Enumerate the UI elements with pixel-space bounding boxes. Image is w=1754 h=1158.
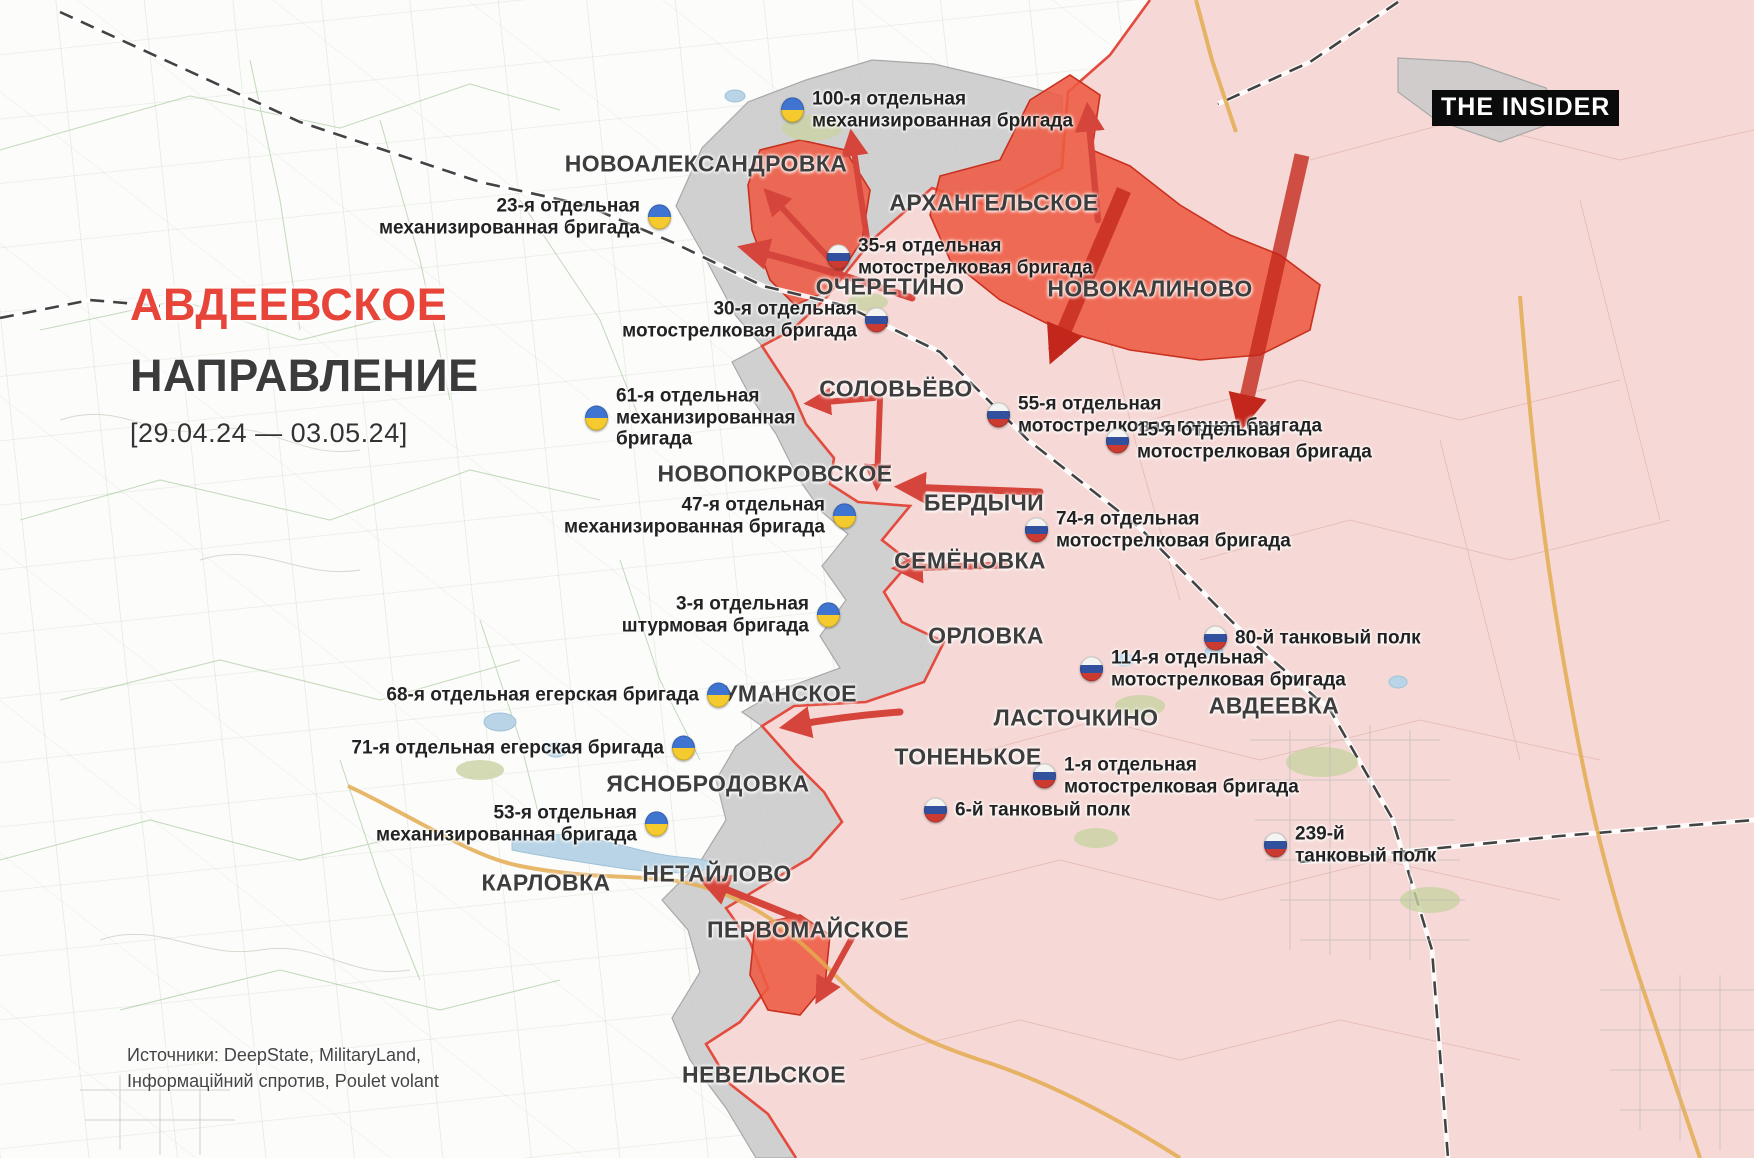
russia-flag-icon	[1264, 833, 1287, 858]
sources-line2: Інформаційний спротив, Poulet volant	[127, 1068, 439, 1094]
unit-label-text: 53-я отдельнаямеханизированная бригада	[376, 802, 637, 845]
ukraine-flag-icon	[781, 98, 804, 123]
russia-flag-icon	[1025, 518, 1048, 543]
title-block: АВДЕЕВСКОЕ НАПРАВЛЕНИЕ [29.04.24 — 03.05…	[130, 282, 479, 447]
unit-label-ru-239-tank: 239-йтанковый полк	[1264, 823, 1436, 866]
unit-label-text: 71-я отдельная егерская бригада	[351, 737, 664, 759]
settlement-label-orlovka: ОРЛОВКА	[928, 623, 1044, 650]
ukraine-flag-icon	[817, 603, 840, 628]
unit-label-ru-114-motor: 114-я отдельнаямотострелковая бригада	[1080, 647, 1346, 690]
unit-label-text: 3-я отдельнаяштурмовая бригада	[622, 593, 809, 636]
unit-label-ru-15-motor: 15-я отдельнаямотострелковая бригада	[1106, 419, 1372, 462]
settlement-label-pervomayskoe: ПЕРВОМАЙСКОЕ	[707, 917, 909, 944]
settlement-label-nevelskoe: НЕВЕЛЬСКОЕ	[682, 1062, 846, 1089]
sources-line1: Источники: DeepState, MilitaryLand,	[127, 1042, 439, 1068]
settlement-label-novooleksandrivka: НОВОАЛЕКСАНДРОВКА	[565, 151, 848, 178]
russia-flag-icon	[1080, 657, 1103, 682]
sources-note: Источники: DeepState, MilitaryLand, Інфо…	[127, 1042, 439, 1094]
unit-label-text: 6-й танковый полк	[955, 799, 1130, 821]
settlement-label-novopokrovskoe: НОВОПОКРОВСКОЕ	[657, 461, 892, 488]
settlement-label-netaylovo: НЕТАЙЛОВО	[642, 861, 791, 888]
unit-label-ua-68-jaeger: 68-я отдельная егерская бригада	[386, 683, 730, 708]
unit-label-text: 80-й танковый полк	[1235, 627, 1421, 649]
unit-label-text: 74-я отдельнаямотострелковая бригада	[1056, 508, 1291, 551]
unit-label-text: 1-я отдельнаямотострелковая бригада	[1064, 754, 1299, 797]
unit-label-ua-47-mech: 47-я отдельнаямеханизированная бригада	[564, 494, 856, 537]
unit-label-ua-100-mech: 100-я отдельнаямеханизированная бригада	[781, 88, 1073, 131]
ukraine-flag-icon	[648, 205, 671, 230]
settlement-label-semyonovka: СЕМЁНОВКА	[894, 548, 1046, 575]
russia-flag-icon	[987, 403, 1010, 428]
unit-label-ua-71-jaeger: 71-я отдельная егерская бригада	[351, 736, 695, 761]
ukraine-flag-icon	[833, 504, 856, 529]
settlement-label-tonenkoe: ТОНЕНЬКОЕ	[894, 744, 1041, 771]
unit-label-ru-30-motor: 30-я отдельнаямотострелковая бригада	[622, 298, 888, 341]
ukraine-flag-icon	[645, 812, 668, 837]
map-graphics	[0, 0, 1754, 1158]
unit-label-ru-6-tank: 6-й танковый полк	[924, 798, 1130, 823]
unit-label-ua-3-assault: 3-я отдельнаяштурмовая бригада	[622, 593, 840, 636]
ukraine-flag-icon	[585, 406, 608, 431]
unit-label-text: 30-я отдельнаямотострелковая бригада	[622, 298, 857, 341]
unit-label-ua-53-mech: 53-я отдельнаямеханизированная бригада	[376, 802, 668, 845]
unit-label-ru-1-motor: 1-я отдельнаямотострелковая бригада	[1033, 754, 1299, 797]
unit-label-text: 23-я отдельнаямеханизированная бригада	[379, 195, 640, 238]
brand-logo: THE INSIDER	[1432, 90, 1619, 126]
ukraine-flag-icon	[707, 683, 730, 708]
map-title-line2: НАПРАВЛЕНИЕ	[130, 353, 479, 398]
unit-label-text: 47-я отдельнаямеханизированная бригада	[564, 494, 825, 537]
settlement-label-yasnobrodovka: ЯСНОБРОДОВКА	[606, 771, 809, 798]
unit-label-ru-74-motor: 74-я отдельнаямотострелковая бригада	[1025, 508, 1291, 551]
russia-flag-icon	[1033, 764, 1056, 789]
ukraine-flag-icon	[672, 736, 695, 761]
russia-flag-icon	[924, 798, 947, 823]
settlement-label-umanskoe: УМАНСКОЕ	[723, 681, 857, 708]
russia-flag-icon	[865, 308, 888, 333]
map-title-line1: АВДЕЕВСКОЕ	[130, 282, 479, 327]
unit-label-text: 114-я отдельнаямотострелковая бригада	[1111, 647, 1346, 690]
map-canvas: THE INSIDER АВДЕЕВСКОЕ НАПРАВЛЕНИЕ [29.0…	[0, 0, 1754, 1158]
unit-label-ua-23-mech: 23-я отдельнаямеханизированная бригада	[379, 195, 671, 238]
unit-label-text: 35-я отдельнаямотострелковая бригада	[858, 235, 1093, 278]
settlement-label-arkhangelskoe: АРХАНГЕЛЬСКОЕ	[889, 190, 1098, 217]
russia-flag-icon	[1106, 429, 1129, 454]
unit-label-text: 61-я отдельнаямеханизированнаябригада	[616, 386, 796, 451]
russia-flag-icon	[827, 245, 850, 270]
unit-label-ru-35-motor: 35-я отдельнаямотострелковая бригада	[827, 235, 1093, 278]
date-range: [29.04.24 — 03.05.24]	[130, 420, 479, 447]
settlement-label-novokalinovo: НОВОКАЛИНОВО	[1047, 276, 1252, 303]
settlement-label-lastochkino: ЛАСТОЧКИНО	[994, 705, 1159, 732]
settlement-label-solovyovo: СОЛОВЬЁВО	[819, 376, 972, 403]
unit-label-text: 15-я отдельнаямотострелковая бригада	[1137, 419, 1372, 462]
settlement-label-avdeevka: АВДЕЕВКА	[1209, 693, 1339, 720]
unit-label-text: 68-я отдельная егерская бригада	[386, 684, 699, 706]
unit-label-text: 239-йтанковый полк	[1295, 823, 1436, 866]
unit-label-text: 100-я отдельнаямеханизированная бригада	[812, 88, 1073, 131]
unit-label-ua-61-mech: 61-я отдельнаямеханизированнаябригада	[585, 386, 796, 451]
settlement-label-karlovka: КАРЛОВКА	[481, 870, 610, 897]
